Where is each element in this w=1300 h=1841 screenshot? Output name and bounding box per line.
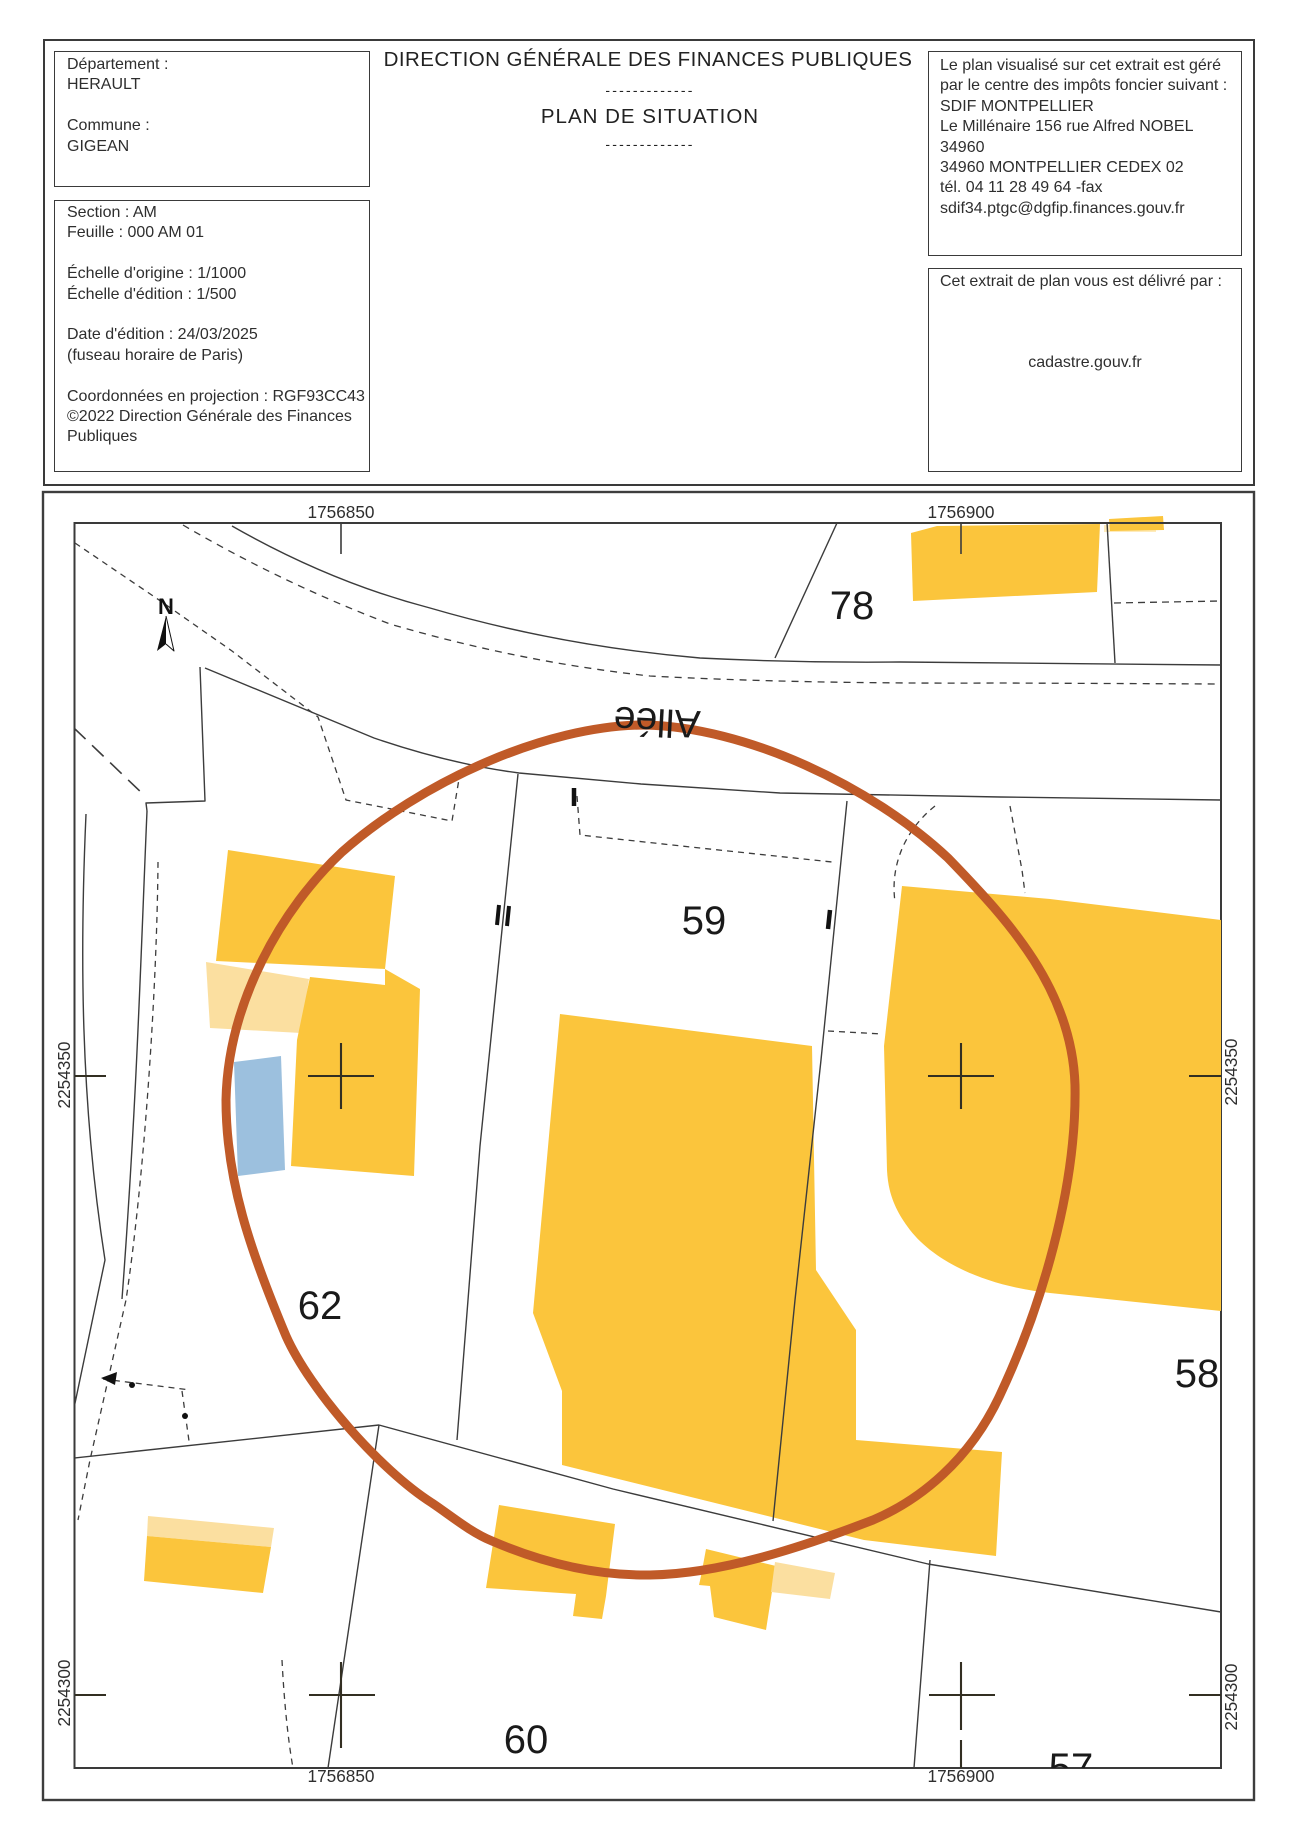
- svg-text:Allée: Allée: [613, 698, 702, 745]
- svg-text:1756900: 1756900: [928, 1766, 995, 1786]
- svg-text:57: 57: [1049, 1746, 1094, 1790]
- svg-text:1756850: 1756850: [308, 1766, 375, 1786]
- svg-text:1756850: 1756850: [308, 502, 375, 522]
- svg-text:2254350: 2254350: [1221, 1039, 1241, 1106]
- svg-text:2254300: 2254300: [54, 1660, 74, 1727]
- svg-text:62: 62: [298, 1284, 343, 1328]
- svg-text:2254350: 2254350: [54, 1042, 74, 1109]
- svg-text:2254300: 2254300: [1221, 1664, 1241, 1731]
- svg-text:59: 59: [682, 899, 727, 943]
- svg-text:1756900: 1756900: [928, 502, 995, 522]
- svg-text:58: 58: [1175, 1352, 1220, 1396]
- svg-text:N: N: [158, 594, 174, 619]
- svg-text:60: 60: [504, 1718, 549, 1762]
- svg-text:78: 78: [830, 584, 875, 628]
